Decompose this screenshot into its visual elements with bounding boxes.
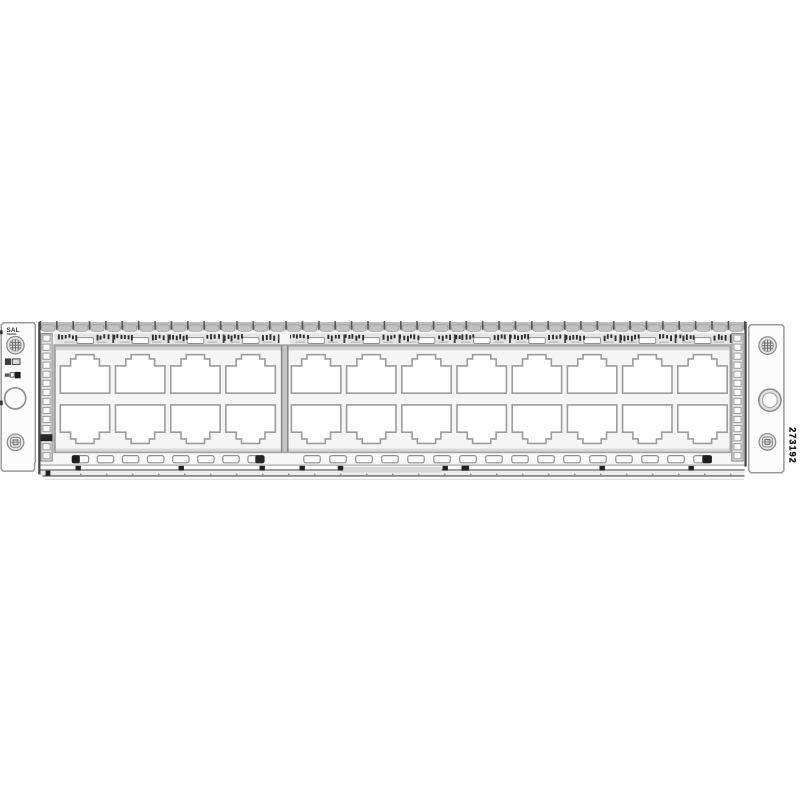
- svg-text:SAL: SAL: [6, 327, 19, 334]
- svg-text:273192: 273192: [788, 427, 798, 464]
